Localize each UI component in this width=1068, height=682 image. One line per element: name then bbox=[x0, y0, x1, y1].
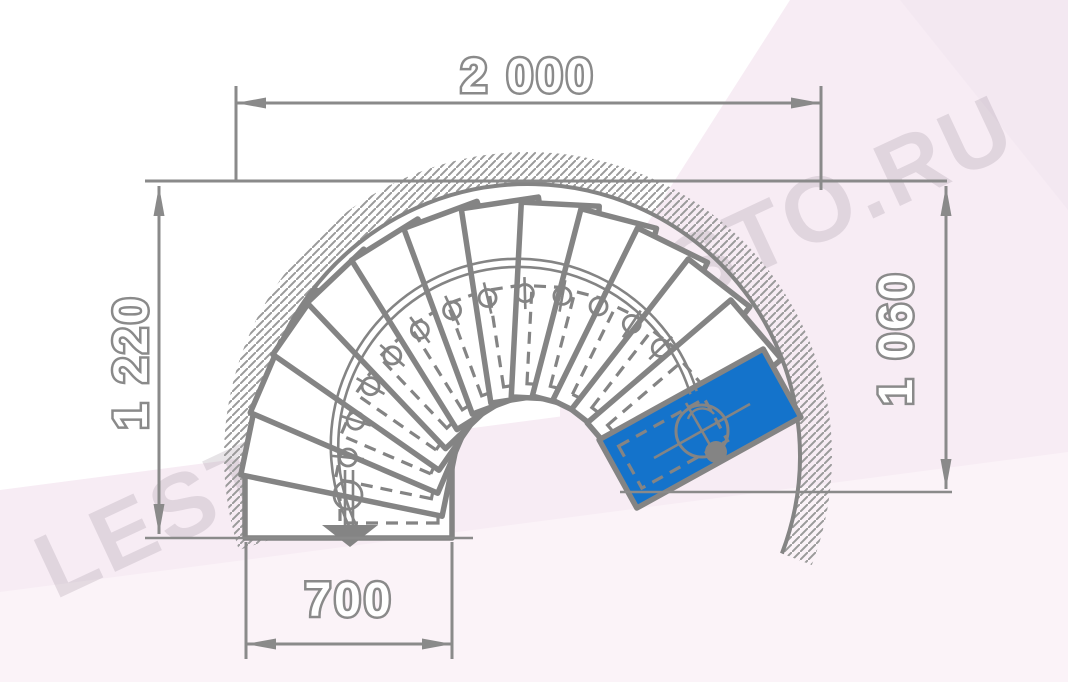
staircase-drawing-page: LESTNICI-PROSTO.RU 2 000 1 220 1 060 700 bbox=[0, 0, 1068, 682]
dimension-bottom-label: 700 bbox=[304, 574, 393, 627]
dimension-top-label: 2 000 bbox=[460, 50, 595, 103]
dimension-left-label: 1 220 bbox=[105, 294, 158, 429]
dimension-right-label: 1 060 bbox=[870, 270, 923, 405]
walk-line-tick bbox=[524, 277, 525, 309]
center-pole bbox=[705, 441, 727, 463]
stair-plan-svg: LESTNICI-PROSTO.RU 2 000 1 220 1 060 700 bbox=[0, 0, 1068, 682]
